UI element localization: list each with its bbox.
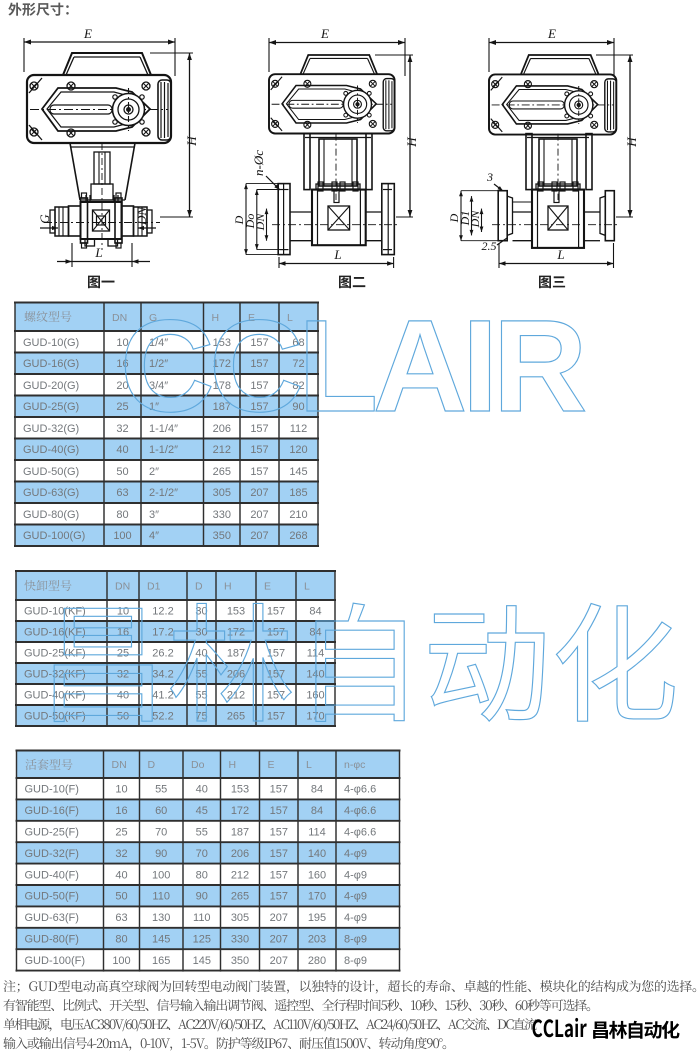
svg-text:4-φ6.6: 4-φ6.6 <box>344 805 376 817</box>
svg-text:DN: DN <box>115 581 130 593</box>
svg-text:n-Øc: n-Øc <box>251 150 266 176</box>
svg-text:3: 3 <box>486 170 493 184</box>
svg-text:GUD-80(F): GUD-80(F) <box>25 934 79 946</box>
svg-text:GUD-100(F): GUD-100(F) <box>25 955 86 967</box>
svg-text:3″: 3″ <box>149 509 159 521</box>
svg-text:84: 84 <box>309 606 321 618</box>
svg-text:H: H <box>224 581 232 593</box>
svg-text:350: 350 <box>231 955 249 967</box>
svg-text:203: 203 <box>308 934 326 946</box>
svg-text:50: 50 <box>115 891 127 903</box>
svg-text:4-φ6.6: 4-φ6.6 <box>344 784 376 796</box>
svg-text:2.5: 2.5 <box>482 239 497 253</box>
svg-text:170: 170 <box>308 891 326 903</box>
svg-text:GUD-63(F): GUD-63(F) <box>25 912 79 924</box>
svg-text:DN: DN <box>468 210 482 229</box>
svg-text:GUD-10(KF): GUD-10(KF) <box>24 606 86 618</box>
svg-text:187: 187 <box>227 648 245 660</box>
svg-text:80: 80 <box>196 869 208 881</box>
svg-text:157: 157 <box>270 869 288 881</box>
svg-text:L: L <box>94 245 102 260</box>
svg-text:157: 157 <box>267 627 285 639</box>
svg-text:GUD-40(G): GUD-40(G) <box>23 444 79 456</box>
svg-text:GUD-16(G): GUD-16(G) <box>23 358 79 370</box>
svg-text:10: 10 <box>115 784 127 796</box>
svg-text:2″: 2″ <box>149 466 159 478</box>
svg-text:207: 207 <box>270 912 288 924</box>
svg-text:330: 330 <box>231 934 249 946</box>
svg-text:40: 40 <box>115 869 127 881</box>
svg-text:Do: Do <box>191 759 205 771</box>
svg-text:H: H <box>229 759 237 771</box>
svg-text:207: 207 <box>250 487 268 499</box>
svg-text:E: E <box>264 581 271 593</box>
svg-text:80: 80 <box>115 934 127 946</box>
svg-text:26.2: 26.2 <box>152 648 173 660</box>
svg-text:60: 60 <box>155 805 167 817</box>
svg-text:25: 25 <box>117 648 129 660</box>
svg-text:GUD-50(F): GUD-50(F) <box>25 891 79 903</box>
svg-text:70: 70 <box>196 848 208 860</box>
svg-text:D: D <box>148 759 156 771</box>
svg-text:4-φ9: 4-φ9 <box>344 891 367 903</box>
svg-text:H: H <box>184 136 199 147</box>
svg-text:32: 32 <box>117 669 129 681</box>
svg-text:GUD-16(F): GUD-16(F) <box>25 805 79 817</box>
svg-text:157: 157 <box>267 711 285 723</box>
svg-text:63: 63 <box>116 487 128 499</box>
svg-text:GUD-10(G): GUD-10(G) <box>23 337 79 349</box>
svg-text:80: 80 <box>116 509 128 521</box>
svg-text:4″: 4″ <box>149 530 159 542</box>
svg-text:157: 157 <box>270 891 288 903</box>
svg-text:305: 305 <box>213 487 231 499</box>
svg-text:45: 45 <box>196 805 208 817</box>
svg-text:265: 265 <box>213 466 231 478</box>
svg-text:DN: DN <box>112 759 127 771</box>
svg-text:n-φc: n-φc <box>344 759 365 771</box>
svg-text:GUD-63(G): GUD-63(G) <box>23 487 79 499</box>
svg-text:157: 157 <box>270 784 288 796</box>
svg-text:195: 195 <box>308 912 326 924</box>
svg-text:GUD-50(KF): GUD-50(KF) <box>24 711 86 723</box>
svg-text:153: 153 <box>227 606 245 618</box>
svg-text:GUD-50(G): GUD-50(G) <box>23 466 79 478</box>
svg-text:41.2: 41.2 <box>152 690 173 702</box>
svg-text:84: 84 <box>311 805 323 817</box>
svg-text:50: 50 <box>117 711 129 723</box>
svg-text:157: 157 <box>267 606 285 618</box>
svg-text:GUD-40(F): GUD-40(F) <box>25 869 79 881</box>
svg-text:330: 330 <box>213 509 231 521</box>
svg-text:172: 172 <box>231 805 249 817</box>
svg-text:172: 172 <box>227 627 245 639</box>
svg-text:50: 50 <box>116 466 128 478</box>
svg-text:40: 40 <box>117 690 129 702</box>
svg-text:265: 265 <box>231 891 249 903</box>
svg-text:DN: DN <box>134 206 149 226</box>
svg-text:265: 265 <box>227 711 245 723</box>
svg-text:207: 207 <box>250 509 268 521</box>
svg-text:17.2: 17.2 <box>152 627 173 639</box>
svg-text:40: 40 <box>196 784 208 796</box>
svg-text:187: 187 <box>231 827 249 839</box>
svg-text:4-φ9: 4-φ9 <box>344 848 367 860</box>
svg-text:206: 206 <box>231 848 249 860</box>
svg-text:100: 100 <box>152 869 170 881</box>
svg-text:140: 140 <box>308 848 326 860</box>
svg-text:G: G <box>37 214 52 224</box>
svg-text:GUD-32(F): GUD-32(F) <box>25 848 79 860</box>
svg-text:145: 145 <box>289 466 307 478</box>
svg-text:268: 268 <box>289 530 307 542</box>
svg-text:2-1/2″: 2-1/2″ <box>149 487 178 499</box>
svg-text:207: 207 <box>270 955 288 967</box>
svg-text:DN: DN <box>253 213 267 232</box>
svg-text:212: 212 <box>231 869 249 881</box>
svg-text:100: 100 <box>113 530 131 542</box>
svg-text:L: L <box>556 247 564 262</box>
svg-text:90: 90 <box>196 891 208 903</box>
svg-text:D1: D1 <box>147 581 161 593</box>
svg-text:157: 157 <box>270 848 288 860</box>
svg-text:GUD-20(G): GUD-20(G) <box>23 380 79 392</box>
svg-text:350: 350 <box>213 530 231 542</box>
svg-text:GUD-25(F): GUD-25(F) <box>25 827 79 839</box>
svg-text:16: 16 <box>115 805 127 817</box>
svg-text:157: 157 <box>270 805 288 817</box>
svg-text:GUD-10(F): GUD-10(F) <box>25 784 79 796</box>
svg-text:4-φ9: 4-φ9 <box>344 869 367 881</box>
svg-text:GUD-80(G): GUD-80(G) <box>23 509 79 521</box>
svg-text:H: H <box>624 137 639 148</box>
svg-text:10: 10 <box>117 606 129 618</box>
svg-text:207: 207 <box>270 934 288 946</box>
svg-text:120: 120 <box>289 444 307 456</box>
svg-text:E: E <box>547 26 556 41</box>
svg-text:CCLAIR: CCLAIR <box>120 292 585 439</box>
svg-text:L: L <box>304 581 310 593</box>
svg-text:100: 100 <box>112 955 130 967</box>
svg-text:145: 145 <box>152 934 170 946</box>
svg-text:34.2: 34.2 <box>152 669 173 681</box>
svg-text:157: 157 <box>250 466 268 478</box>
svg-text:1-1/2″: 1-1/2″ <box>149 444 178 456</box>
svg-text:114: 114 <box>308 827 326 839</box>
svg-text:55: 55 <box>155 784 167 796</box>
svg-text:157: 157 <box>267 690 285 702</box>
svg-text:GUD-32(KF): GUD-32(KF) <box>24 669 86 681</box>
svg-text:210: 210 <box>289 509 307 521</box>
svg-text:70: 70 <box>155 827 167 839</box>
svg-text:GUD-25(G): GUD-25(G) <box>23 401 79 413</box>
svg-text:32: 32 <box>115 848 127 860</box>
svg-text:145: 145 <box>193 955 211 967</box>
svg-text:4-φ9: 4-φ9 <box>344 912 367 924</box>
svg-text:125: 125 <box>193 934 211 946</box>
svg-text:165: 165 <box>152 955 170 967</box>
svg-text:D: D <box>195 581 203 593</box>
svg-text:L: L <box>333 247 341 262</box>
svg-text:GUD-40(KF): GUD-40(KF) <box>24 690 86 702</box>
svg-text:157: 157 <box>250 444 268 456</box>
svg-text:212: 212 <box>213 444 231 456</box>
svg-text:4-φ6.6: 4-φ6.6 <box>344 827 376 839</box>
svg-text:40: 40 <box>116 444 128 456</box>
svg-text:GUD-100(G): GUD-100(G) <box>23 530 85 542</box>
svg-text:207: 207 <box>250 530 268 542</box>
svg-text:8-φ9: 8-φ9 <box>344 934 367 946</box>
svg-text:H: H <box>404 137 419 148</box>
svg-text:L: L <box>306 759 312 771</box>
svg-text:63: 63 <box>115 912 127 924</box>
svg-text:E: E <box>83 26 92 41</box>
svg-text:110: 110 <box>193 912 211 924</box>
svg-text:90: 90 <box>155 848 167 860</box>
svg-text:25: 25 <box>115 827 127 839</box>
svg-text:110: 110 <box>152 891 170 903</box>
svg-text:55: 55 <box>196 827 208 839</box>
svg-text:8-φ9: 8-φ9 <box>344 955 367 967</box>
svg-text:E: E <box>320 26 329 41</box>
svg-text:280: 280 <box>308 955 326 967</box>
svg-text:153: 153 <box>231 784 249 796</box>
svg-text:GUD-25(KF): GUD-25(KF) <box>24 648 86 660</box>
svg-text:160: 160 <box>308 869 326 881</box>
svg-text:157: 157 <box>270 827 288 839</box>
svg-text:185: 185 <box>289 487 307 499</box>
svg-text:12.2: 12.2 <box>152 606 173 618</box>
svg-text:GUD-32(G): GUD-32(G) <box>23 423 79 435</box>
svg-text:E: E <box>268 759 275 771</box>
svg-text:130: 130 <box>152 912 170 924</box>
svg-text:305: 305 <box>231 912 249 924</box>
svg-text:52.2: 52.2 <box>152 711 173 723</box>
svg-text:84: 84 <box>311 784 323 796</box>
